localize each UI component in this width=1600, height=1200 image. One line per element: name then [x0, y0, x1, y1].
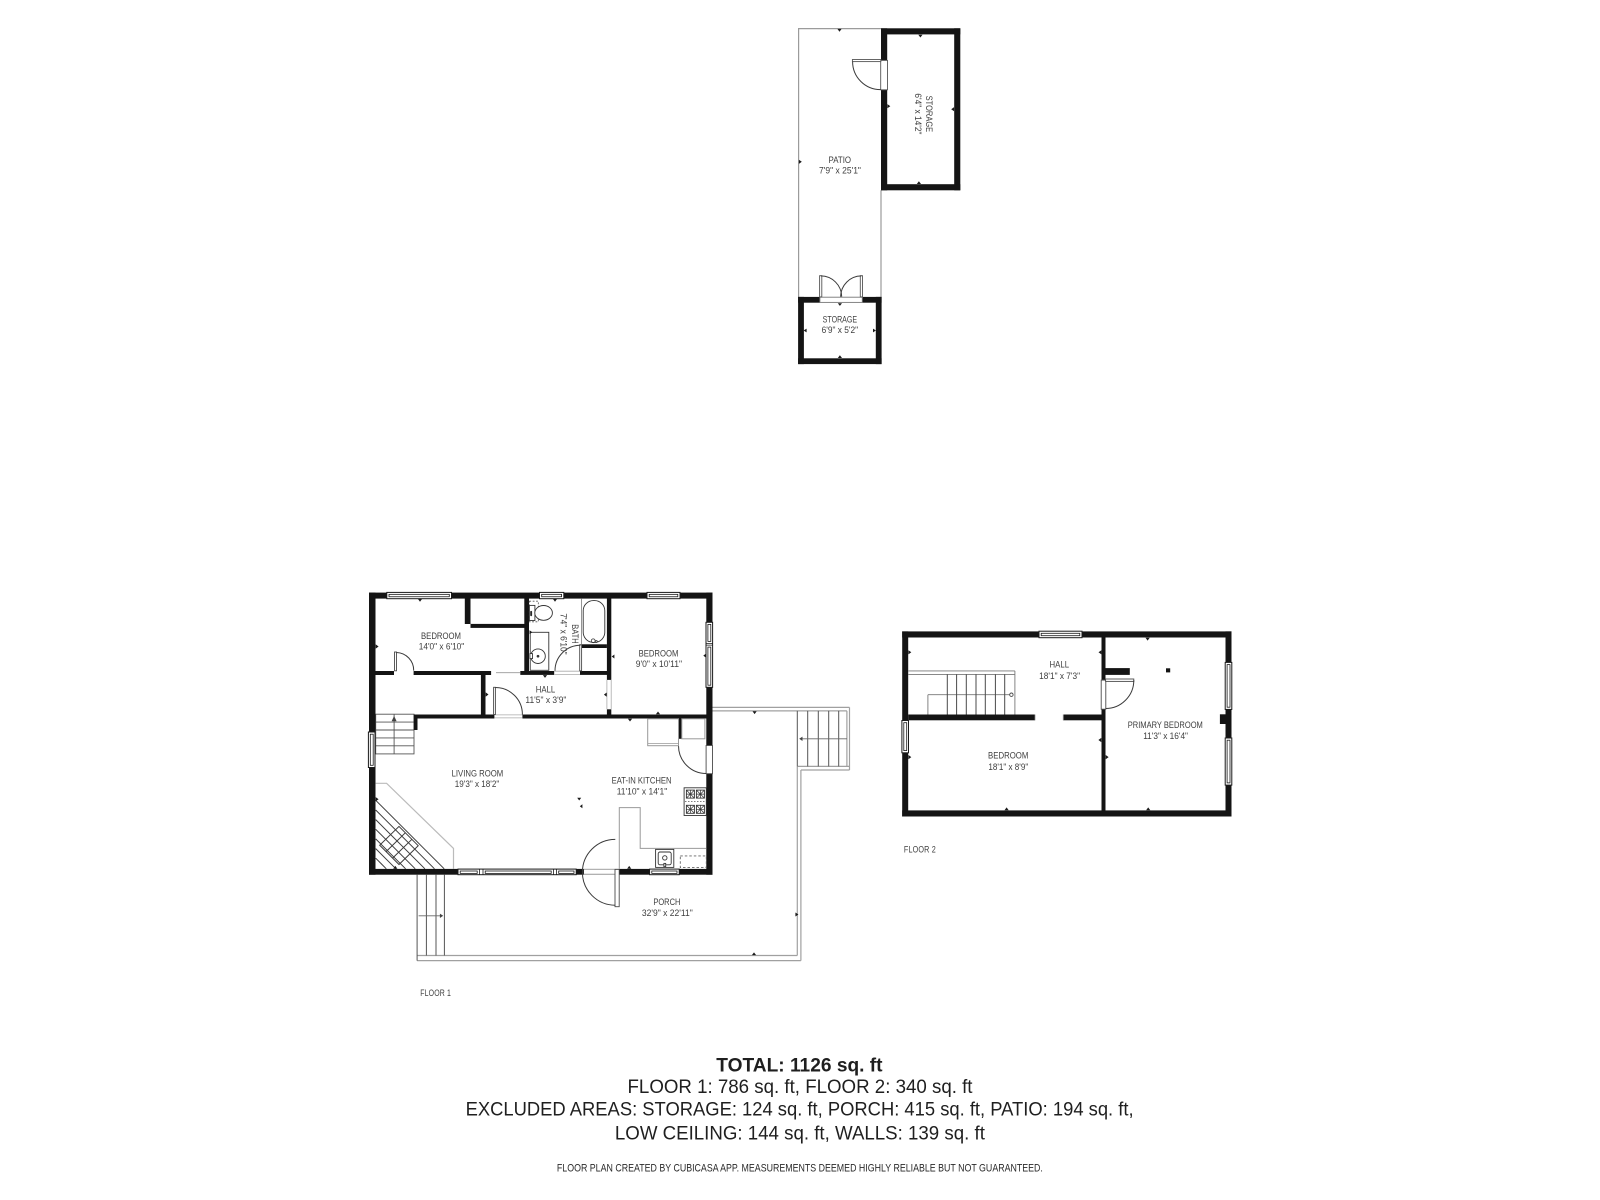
svg-text:19'3" x 18'2": 19'3" x 18'2" [455, 779, 499, 789]
svg-text:LIVING ROOM: LIVING ROOM [452, 769, 504, 779]
svg-text:PORCH: PORCH [653, 897, 680, 907]
svg-text:BEDROOM: BEDROOM [639, 648, 679, 658]
svg-text:6'9" x 5'2": 6'9" x 5'2" [822, 325, 859, 335]
svg-text:HALL: HALL [536, 684, 556, 694]
svg-text:EAT-IN KITCHEN: EAT-IN KITCHEN [612, 776, 672, 786]
svg-text:18'1" x 8'9": 18'1" x 8'9" [988, 762, 1028, 772]
svg-text:FLOOR PLAN CREATED BY CUBICASA: FLOOR PLAN CREATED BY CUBICASA APP. MEAS… [557, 1162, 1043, 1174]
svg-text:FLOOR 1: FLOOR 1 [420, 988, 451, 998]
svg-text:11'3" x 16'4": 11'3" x 16'4" [1143, 731, 1188, 741]
svg-text:6'4" x 14'2": 6'4" x 14'2" [913, 93, 923, 134]
svg-text:BEDROOM: BEDROOM [988, 751, 1028, 761]
svg-text:BEDROOM: BEDROOM [421, 631, 461, 641]
svg-text:14'0" x 6'10": 14'0" x 6'10" [419, 642, 465, 652]
svg-text:9'0" x 10'11": 9'0" x 10'11" [636, 659, 682, 669]
svg-text:7'4" x 6'10": 7'4" x 6'10" [559, 613, 569, 654]
svg-text:FLOOR 1: 786 sq. ft, FLOOR 2:: FLOOR 1: 786 sq. ft, FLOOR 2: 340 sq. ft [628, 1077, 974, 1098]
svg-text:PATIO: PATIO [829, 155, 852, 165]
svg-text:11'10" x 14'1": 11'10" x 14'1" [617, 786, 668, 796]
svg-text:BATH: BATH [570, 624, 580, 643]
svg-text:11'5" x 3'9": 11'5" x 3'9" [525, 695, 566, 705]
svg-text:7'9" x 25'1": 7'9" x 25'1" [819, 165, 861, 175]
svg-text:32'9" x 22'11": 32'9" x 22'11" [642, 908, 693, 918]
svg-text:18'1" x 7'3": 18'1" x 7'3" [1039, 671, 1080, 681]
svg-text:EXCLUDED AREAS: STORAGE: 124 s: EXCLUDED AREAS: STORAGE: 124 sq. ft, POR… [466, 1100, 1134, 1121]
svg-text:HALL: HALL [1050, 660, 1070, 670]
svg-text:STORAGE: STORAGE [823, 315, 858, 325]
svg-text:STORAGE: STORAGE [924, 96, 934, 133]
svg-text:TOTAL: 1126 sq. ft: TOTAL: 1126 sq. ft [716, 1055, 883, 1076]
svg-text:FLOOR 2: FLOOR 2 [904, 845, 936, 855]
svg-text:PRIMARY BEDROOM: PRIMARY BEDROOM [1128, 720, 1203, 730]
svg-text:LOW CEILING: 144 sq. ft, WALLS: LOW CEILING: 144 sq. ft, WALLS: 139 sq. … [615, 1124, 986, 1145]
